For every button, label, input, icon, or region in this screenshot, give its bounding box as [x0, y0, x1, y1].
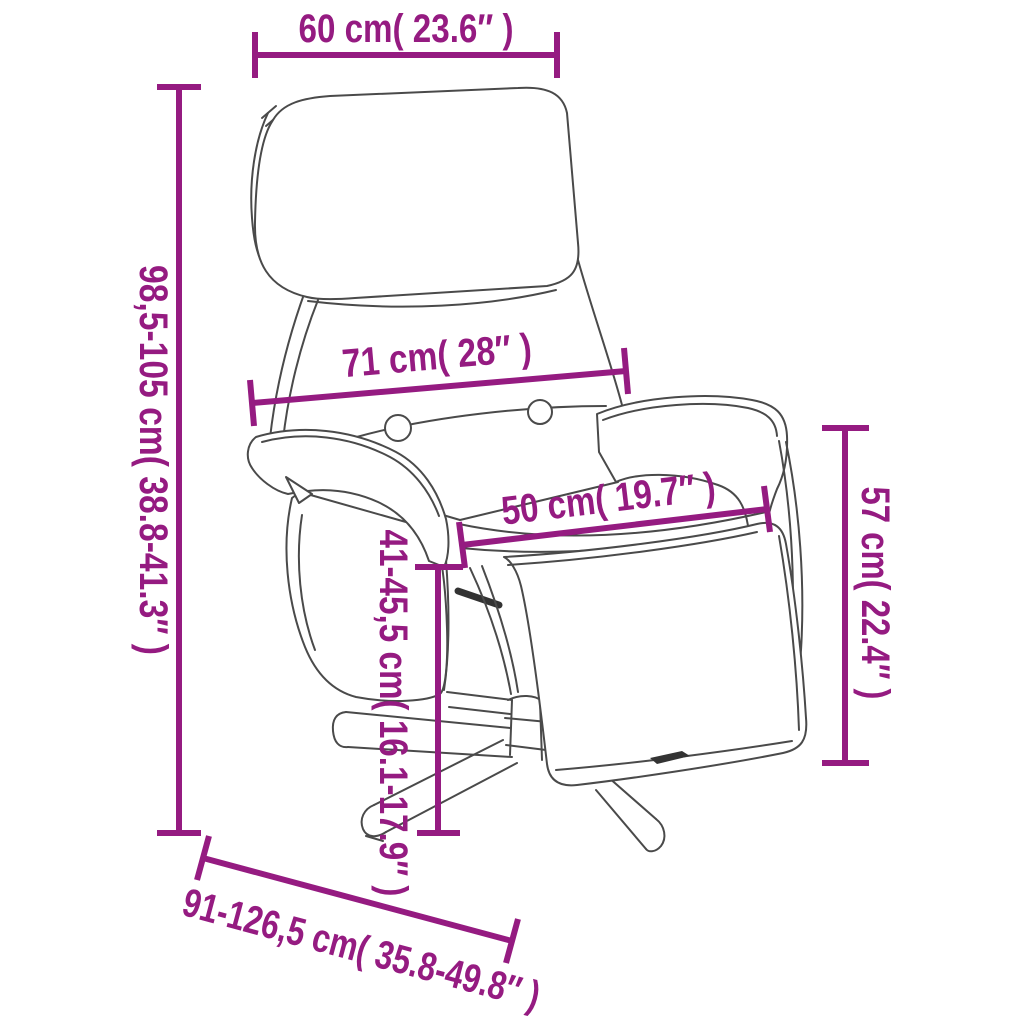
dimension-depth: 91-126,5 cm( 35.8-49.8″ )	[178, 836, 545, 1018]
headrest-fold-line-1	[262, 106, 276, 118]
front-right-leg-bottom	[596, 790, 646, 849]
rear-left-leg-top	[346, 712, 510, 728]
dimension-total-height: 98,5-105 cm( 38.8-41.3″ )	[131, 87, 201, 833]
dimension-total-height-label: 98,5-105 cm( 38.8-41.3″ )	[131, 265, 175, 655]
tufting-button-left	[385, 415, 411, 441]
frame-arm-2	[482, 566, 518, 692]
tick	[250, 380, 254, 426]
tufting-button-right	[528, 400, 552, 424]
chair-line-drawing	[248, 88, 807, 852]
front-right-leg-cap	[646, 819, 664, 851]
product-dimension-diagram: 60 cm( 23.6″ ) 98,5-105 cm( 38.8-41.3″ )…	[0, 0, 1024, 1024]
diagram-svg: 60 cm( 23.6″ ) 98,5-105 cm( 38.8-41.3″ )…	[0, 0, 1024, 1024]
tick	[624, 348, 628, 394]
tick	[459, 522, 465, 568]
strut-1	[447, 692, 512, 700]
hub-top	[508, 696, 542, 701]
dimension-top-width-label: 60 cm( 23.6″ )	[299, 7, 514, 51]
rear-left-leg-cap	[333, 712, 348, 747]
dimension-armrest-height: 57 cm( 22.4″ )	[822, 428, 897, 763]
headrest-cushion	[255, 88, 579, 299]
dimension-top-width: 60 cm( 23.6″ )	[255, 7, 557, 78]
strut-2	[449, 707, 510, 714]
dimension-armrest-height-label: 57 cm( 22.4″ )	[853, 487, 897, 700]
hub-cross-2	[506, 745, 546, 750]
dimension-seat-height-label: 41-45,5 cm( 16.1-17.9″ )	[371, 530, 415, 897]
